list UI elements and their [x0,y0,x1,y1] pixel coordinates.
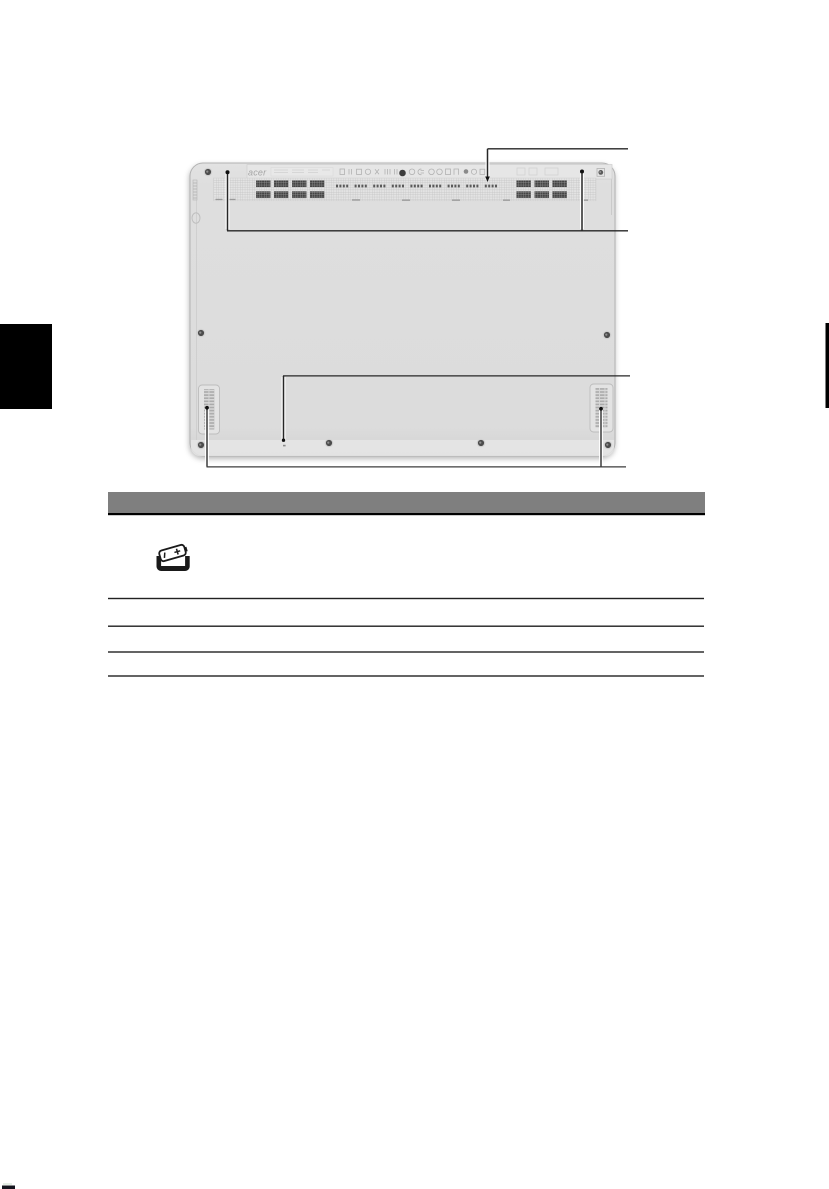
svg-text:acer: acer [248,168,267,178]
